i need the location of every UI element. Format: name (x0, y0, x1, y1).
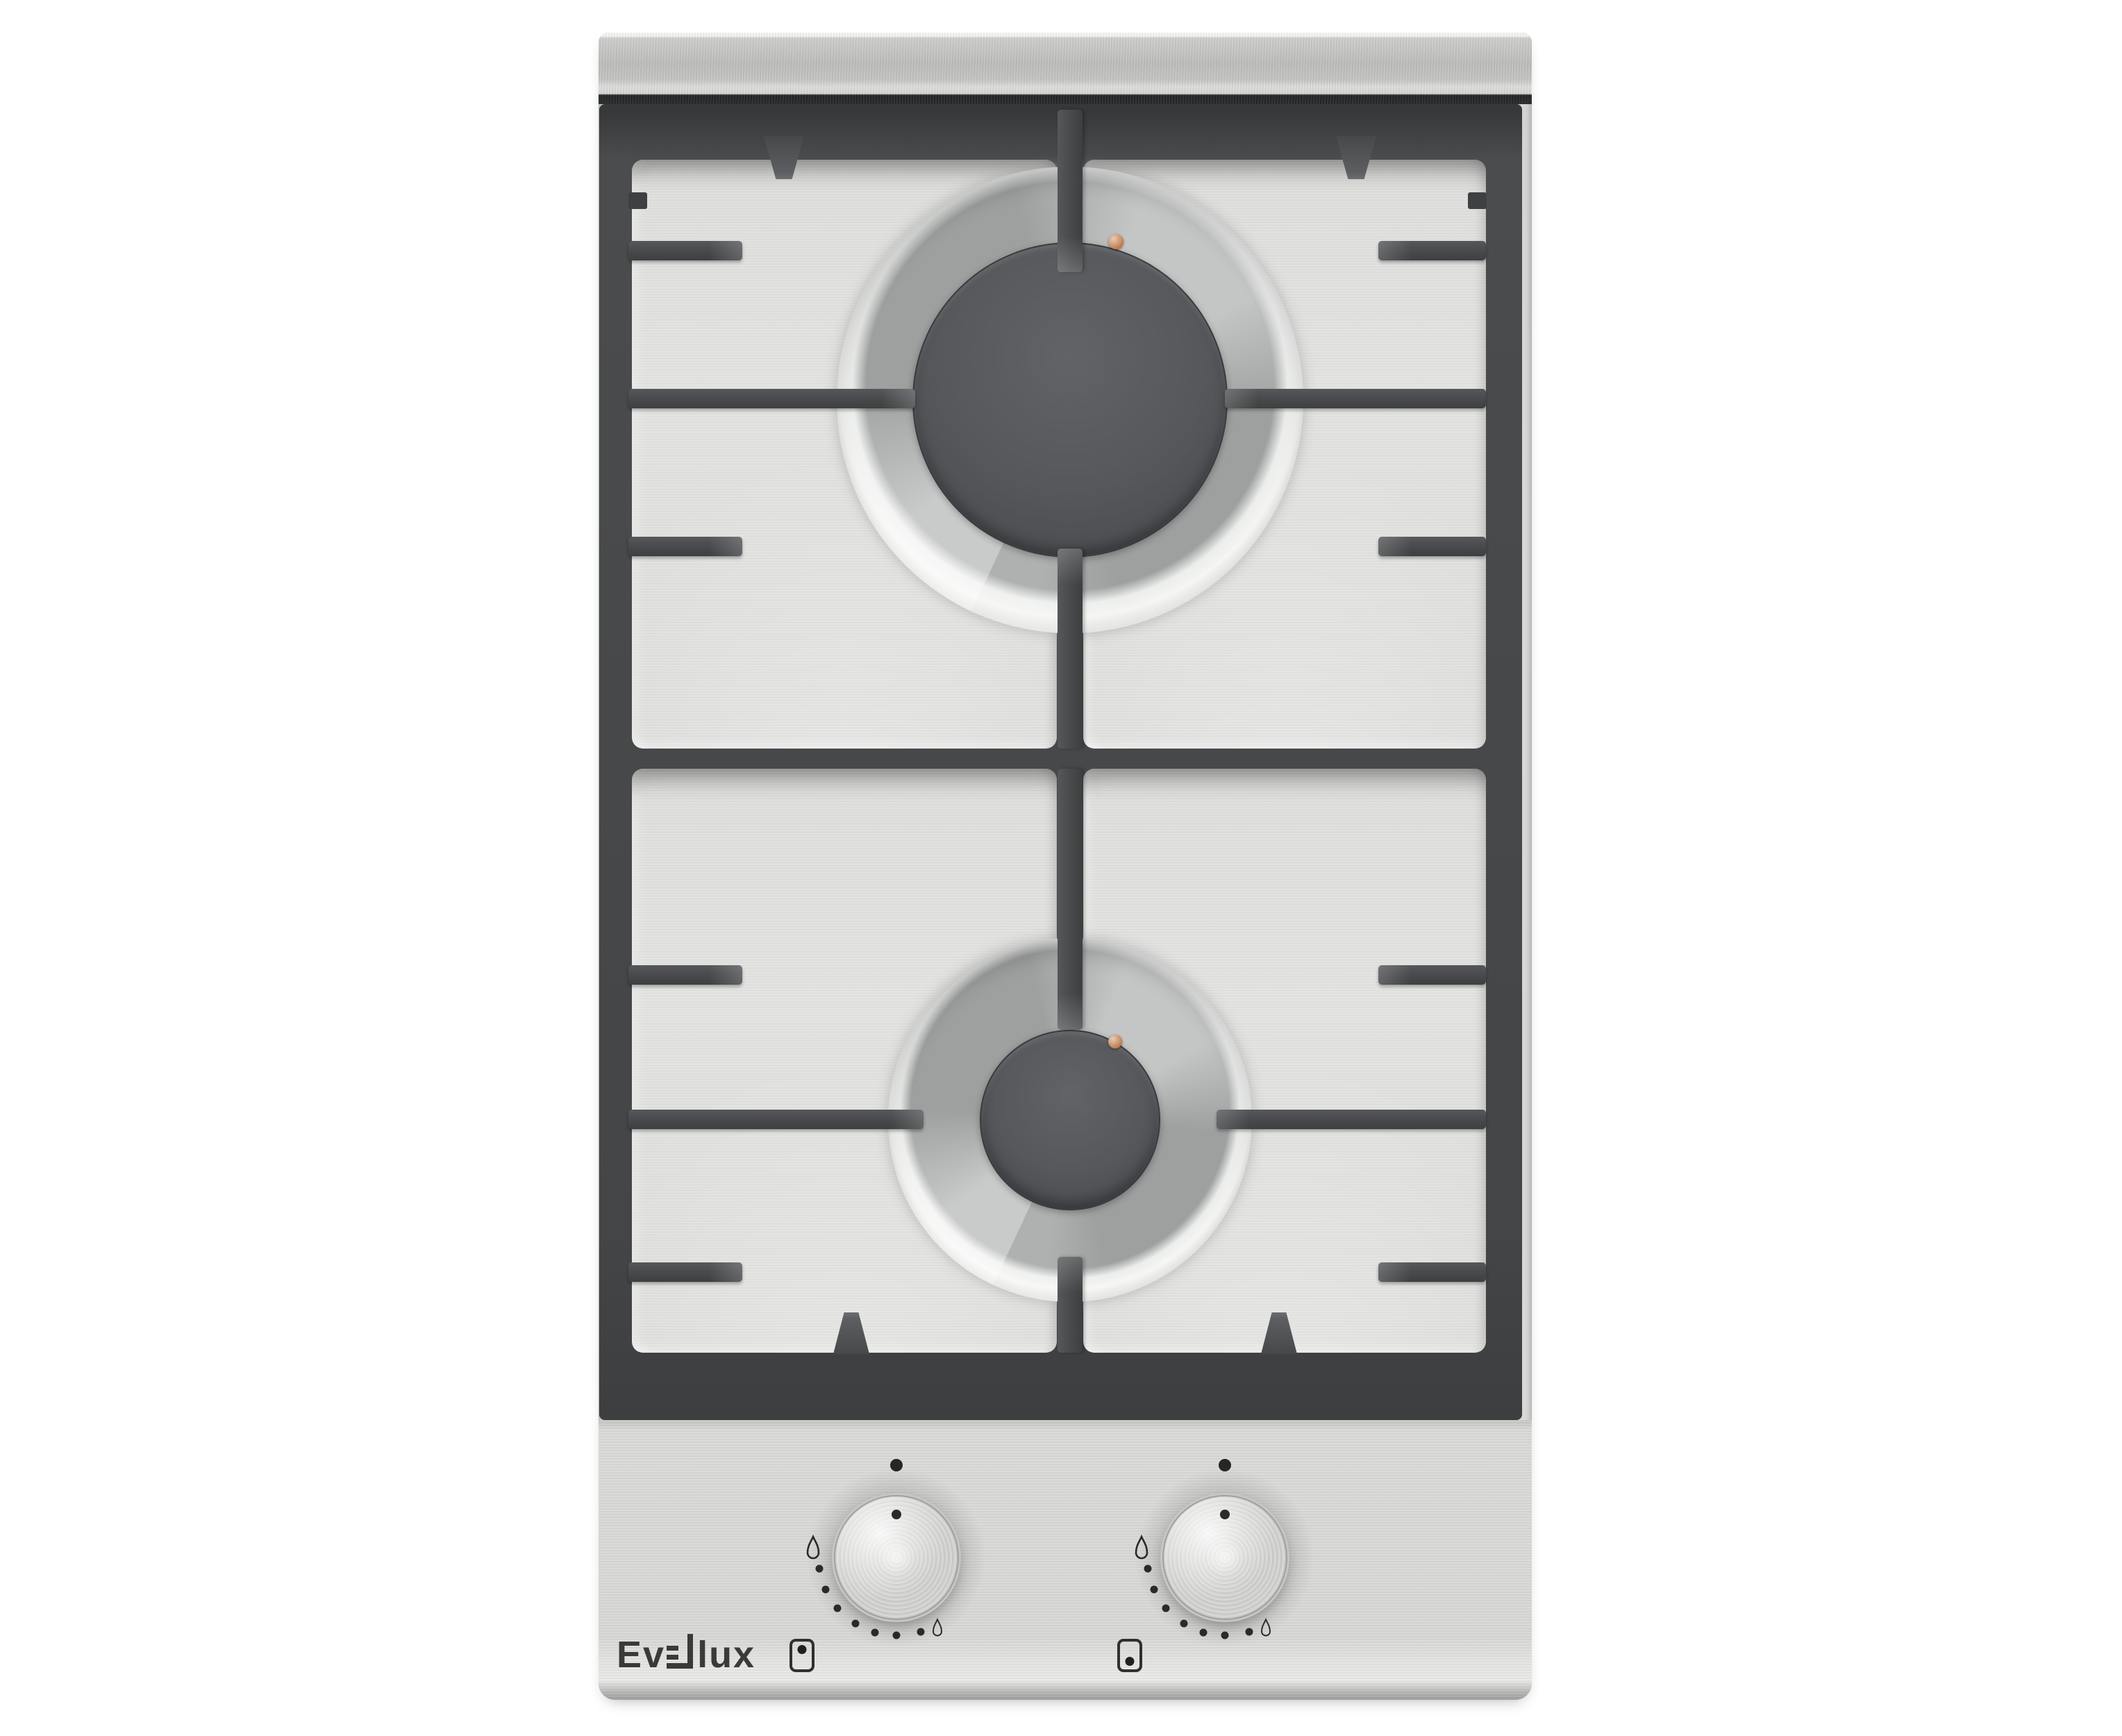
knob-level-dot (1245, 1628, 1253, 1635)
grate-stub (1378, 965, 1486, 985)
knob-level-dot (1180, 1619, 1187, 1627)
pan-support-grate (599, 104, 1522, 1420)
grate-finger-south (1058, 549, 1083, 749)
rear-burner-igniter (1108, 234, 1123, 249)
gas-hob: Evlux (599, 33, 1532, 1700)
knob-level-dot (1162, 1605, 1170, 1612)
knob-pointer-dot (1220, 1510, 1230, 1519)
grate-stub (628, 965, 742, 985)
grate-finger-west (628, 1110, 924, 1129)
rear-burner-position-icon (790, 1639, 814, 1672)
grate-finger-north (1058, 110, 1083, 272)
knob-level-dot (821, 1585, 829, 1593)
grate-stub (628, 1262, 742, 1282)
knob-level-dot (816, 1564, 824, 1572)
knob-level-dot (851, 1619, 859, 1627)
flame-min-icon (931, 1618, 944, 1639)
brand-logo-prefix: Ev (617, 1641, 665, 1669)
rear-burner-knob-zone (792, 1453, 1001, 1662)
knob-level-dot (1221, 1632, 1229, 1639)
control-panel: Evlux (599, 1420, 1532, 1700)
flame-min-icon (1260, 1618, 1272, 1639)
knob-level-dot (893, 1632, 901, 1639)
flame-max-icon (805, 1535, 821, 1562)
burner-position-dot (1126, 1657, 1135, 1666)
knob-level-dot (1150, 1585, 1158, 1593)
burner-position-dot (798, 1645, 807, 1654)
knob-level-dot (917, 1628, 924, 1635)
flame-max-icon (1133, 1535, 1150, 1562)
brand-logo-ligature (667, 1634, 696, 1669)
grate-stub (628, 537, 742, 556)
brand-logo: Evlux (617, 1634, 755, 1669)
knob-off-position-dot (890, 1459, 903, 1471)
knob-pointer-dot (892, 1510, 901, 1519)
knob-level-dot (834, 1605, 842, 1612)
grate-stub (1378, 537, 1486, 556)
grate-stub (1378, 1262, 1486, 1282)
grate-finger-north (1058, 769, 1083, 1030)
knob-level-dot (1144, 1564, 1152, 1572)
knob-off-position-dot (1219, 1459, 1231, 1471)
front-burner-cap (980, 1030, 1160, 1210)
grate-finger-west (628, 389, 915, 408)
front-burner-igniter (1108, 1035, 1122, 1049)
frame-tab (1468, 192, 1487, 209)
knob-level-dot (1200, 1628, 1208, 1636)
front-burner-knob-zone (1121, 1453, 1329, 1662)
grate-finger-east (1217, 1110, 1486, 1129)
front-burner-position-icon (1117, 1639, 1142, 1672)
grate-stub (1378, 241, 1486, 260)
hob-back-edge (599, 33, 1532, 104)
grate-stub (628, 241, 742, 260)
grate-finger-east (1225, 389, 1486, 408)
frame-tab (628, 192, 647, 209)
rear-burner-cap (912, 242, 1228, 558)
knob-level-dot (871, 1628, 879, 1636)
grate-finger-south (1058, 1257, 1083, 1353)
brand-logo-suffix: lux (697, 1641, 755, 1669)
product-photo: Evlux (0, 0, 2122, 1736)
